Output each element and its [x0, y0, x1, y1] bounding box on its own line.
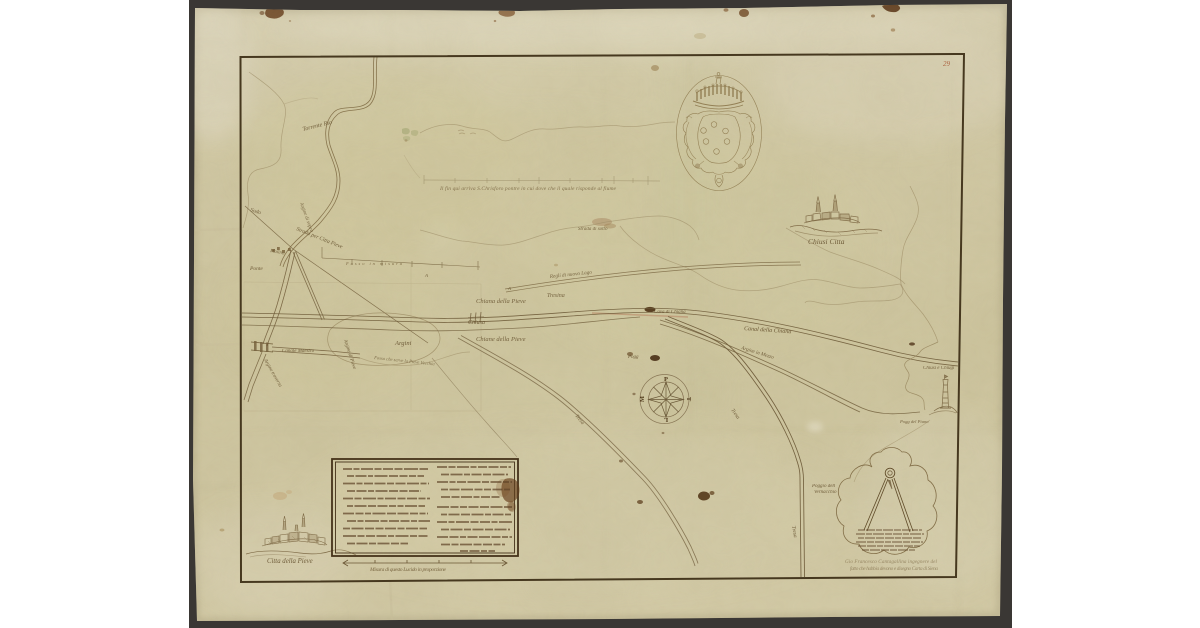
svg-text:Poggio dell: Poggio dell — [811, 484, 836, 489]
svg-text:Ponte: Ponte — [249, 266, 263, 272]
svg-text:Misura di questo Lucido in pro: Misura di questo Lucido in proporzione — [369, 567, 447, 573]
svg-text:M: M — [639, 396, 646, 402]
svg-text:Tresina: Tresina — [547, 293, 565, 299]
svg-text:L: L — [663, 416, 668, 423]
svg-text:T: T — [685, 397, 692, 402]
svg-text:Gio Francesco Cantagallina ing: Gio Francesco Cantagallina ingegnere del — [845, 559, 938, 565]
svg-text:Citta della Pieve: Citta della Pieve — [267, 558, 313, 565]
svg-text:29: 29 — [943, 60, 951, 68]
svg-text:Pogg del Piano: Pogg del Piano — [899, 419, 929, 424]
svg-text:Il fin qui arriva S.Chrisforo: Il fin qui arriva S.Chrisforo pontre in … — [439, 185, 617, 192]
svg-text:Canale Maestro: Canale Maestro — [282, 349, 315, 354]
svg-text:Strada di sotto: Strada di sotto — [578, 227, 608, 232]
svg-text:P: P — [664, 376, 668, 383]
svg-text:Chiane della Pieve: Chiane della Pieve — [476, 336, 526, 343]
svg-text:Chiusi Citta: Chiusi Citta — [808, 237, 845, 246]
svg-text:Vernacchio: Vernacchio — [814, 490, 837, 495]
svg-text:Argini: Argini — [394, 340, 412, 347]
svg-text:Chiusi e Chiugi: Chiusi e Chiugi — [923, 366, 955, 371]
svg-text:Chiana della Pieve: Chiana della Pieve — [476, 298, 526, 305]
svg-text:Cava di Chiana: Cava di Chiana — [654, 310, 686, 315]
svg-text:Chiusa: Chiusa — [468, 320, 485, 326]
svg-text:Pogg: Pogg — [627, 355, 639, 360]
svg-text:fatto che habbia devono e dise: fatto che habbia devono e disegno Carta … — [850, 565, 938, 572]
